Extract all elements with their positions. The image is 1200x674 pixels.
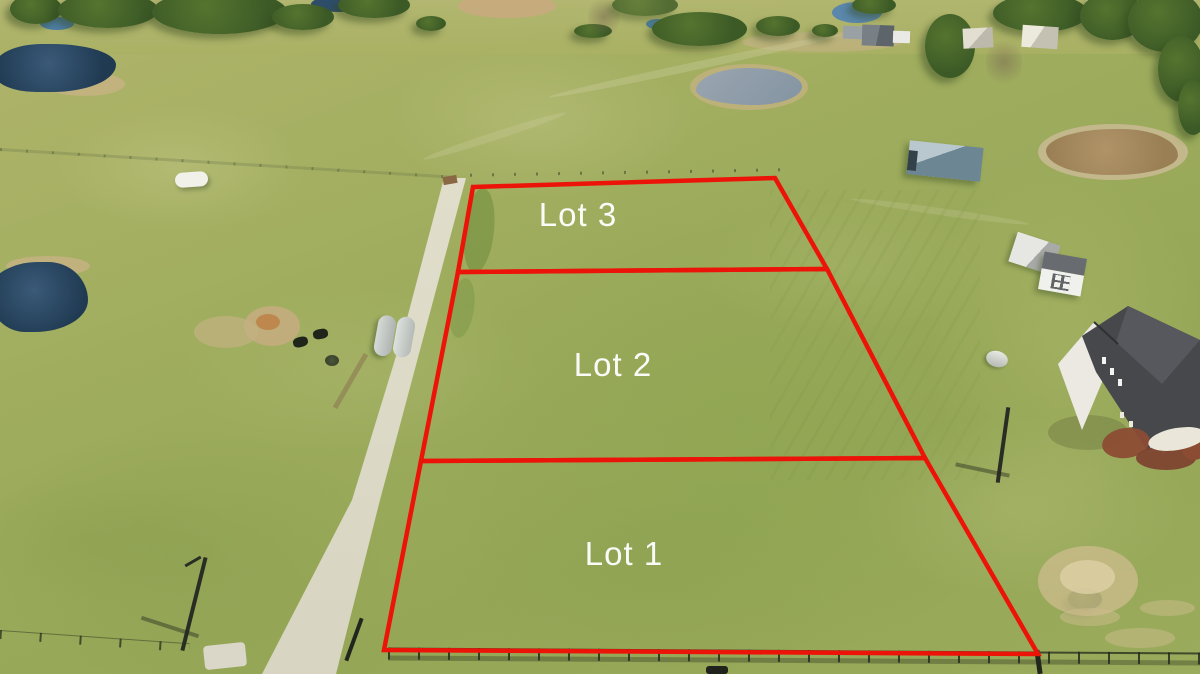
lot-2-label: Lot 2 <box>574 346 652 383</box>
lot-3-boundary <box>458 178 827 272</box>
lot-1-boundary <box>384 458 1038 654</box>
lot-3-label: Lot 3 <box>539 196 617 233</box>
lot-2-boundary <box>421 269 925 461</box>
aerial-land-lot-photo: Lot 3 Lot 2 Lot 1 <box>0 0 1200 674</box>
lot-1-label: Lot 1 <box>585 535 663 572</box>
lot-boundaries-overlay: Lot 3 Lot 2 Lot 1 <box>0 0 1200 674</box>
